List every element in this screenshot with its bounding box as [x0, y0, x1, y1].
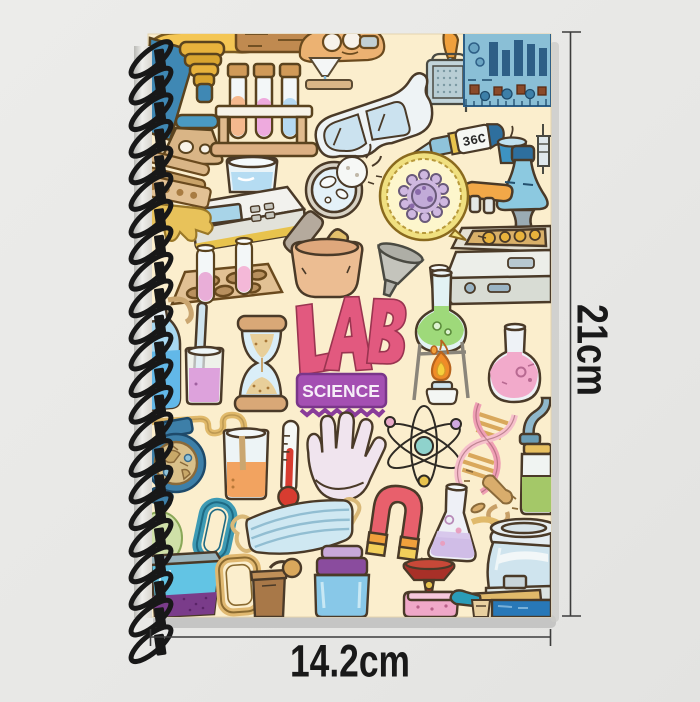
svg-text:21cm: 21cm [568, 304, 617, 396]
svg-text:14.2cm: 14.2cm [290, 636, 410, 687]
svg-text:SCIENCE: SCIENCE [302, 381, 380, 401]
